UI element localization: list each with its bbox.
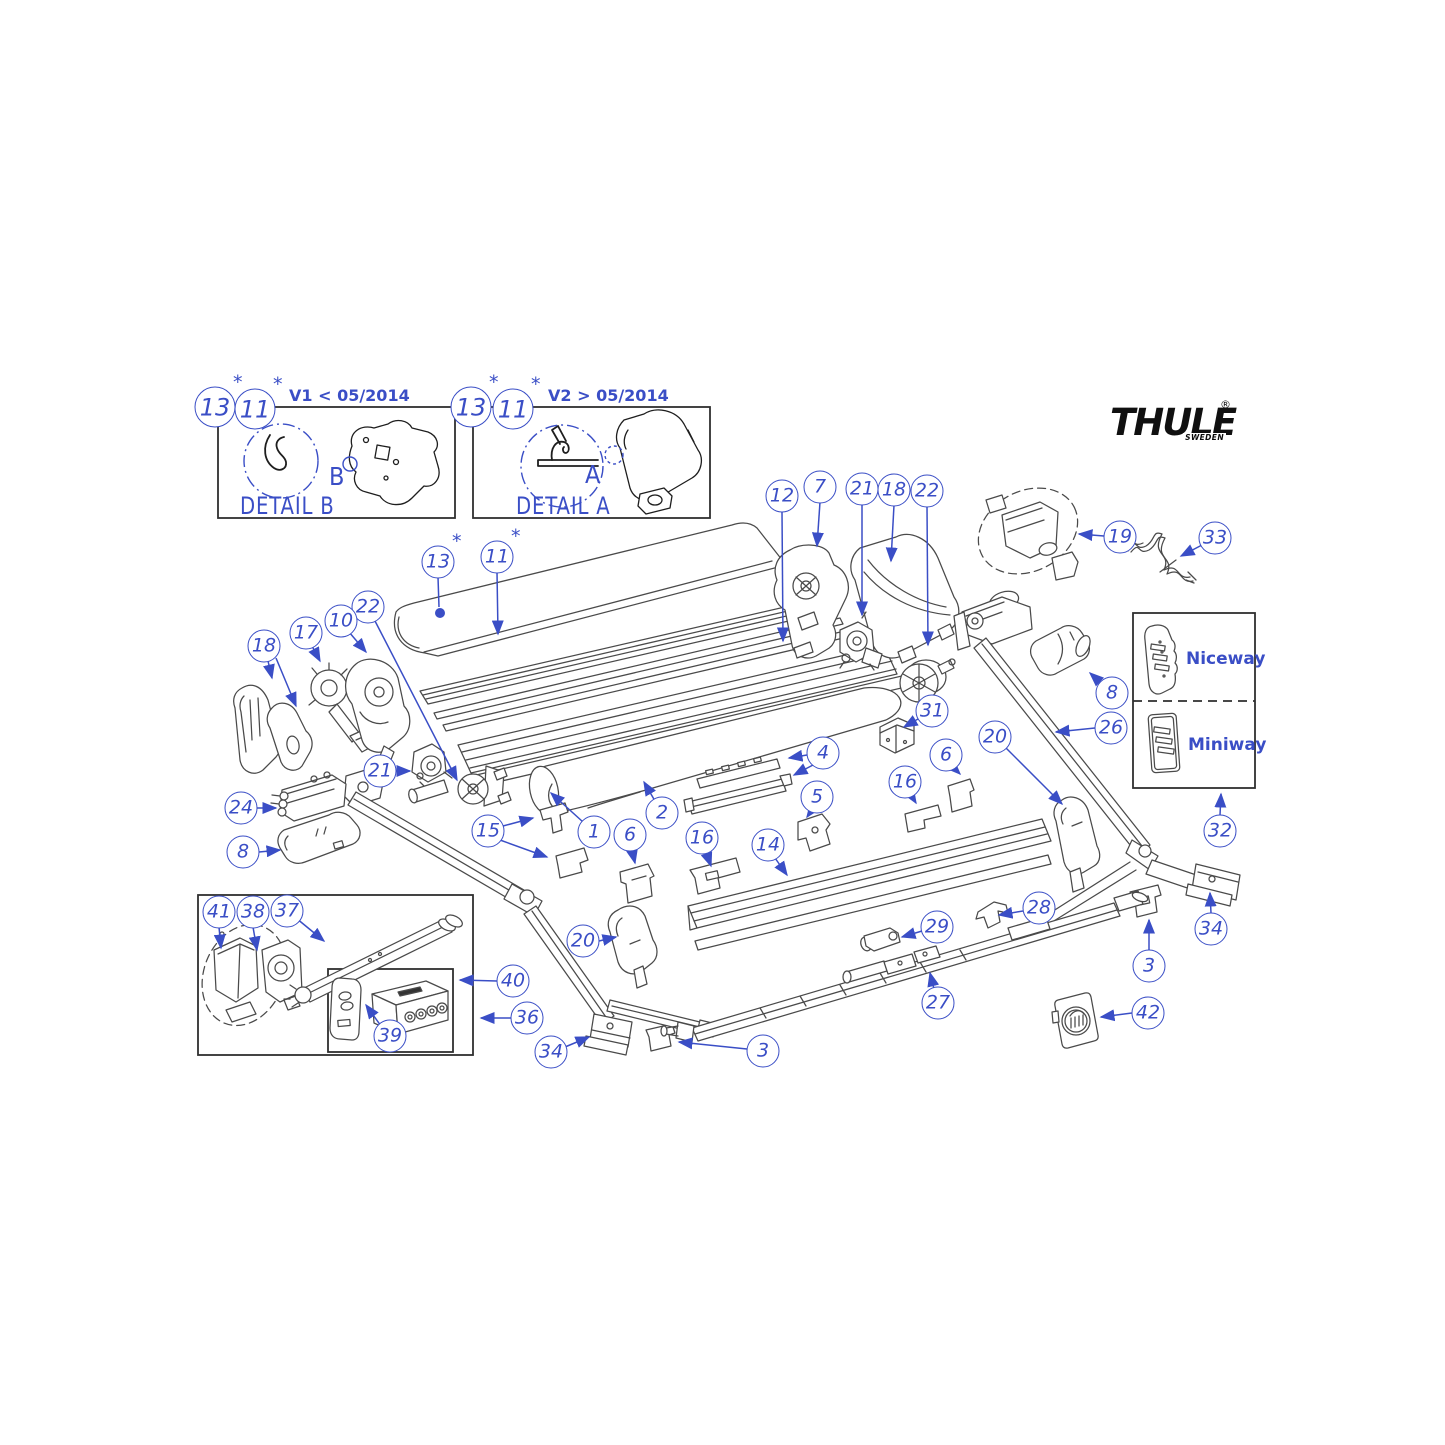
callout-19: 19 (1104, 521, 1137, 554)
callout-11: 11* (481, 541, 514, 574)
callout-34: 34 (1195, 913, 1228, 946)
callout-18: 18 (878, 474, 911, 507)
callout-29: 29 (921, 911, 954, 944)
callout-20: 20 (567, 925, 600, 958)
callout-8: 8 (227, 836, 260, 869)
callout-6: 6 (614, 819, 647, 852)
callout-11: 11* (235, 389, 276, 430)
callout-7: 7 (804, 471, 837, 504)
callout-13: 13* (451, 387, 492, 428)
callout-32: 32 (1204, 815, 1237, 848)
callout-24: 24 (225, 792, 258, 825)
callout-38: 38 (237, 896, 270, 929)
callout-3: 3 (1133, 950, 1166, 983)
callout-40: 40 (497, 965, 530, 998)
callout-3: 3 (747, 1035, 780, 1068)
callout-27: 27 (922, 987, 955, 1020)
callout-22: 22 (911, 475, 944, 508)
callout-21: 21 (846, 473, 879, 506)
callout-11: 11* (493, 389, 534, 430)
callout-13: 13* (195, 387, 236, 428)
callout-layer: 13*11*13*11*127211822193313*11*221017183… (0, 0, 1445, 1445)
callout-16: 16 (686, 822, 719, 855)
callout-31: 31 (916, 695, 949, 728)
parts-diagram-page: V1 < 05/2014 V2 > 05/2014 DETAIL B DETAI… (0, 0, 1445, 1445)
callout-17: 17 (290, 617, 323, 650)
callout-42: 42 (1132, 997, 1165, 1030)
callout-1: 1 (578, 816, 611, 849)
callout-28: 28 (1023, 892, 1056, 925)
callout-13: 13* (422, 546, 455, 579)
callout-36: 36 (511, 1002, 544, 1035)
callout-8: 8 (1096, 677, 1129, 710)
callout-18: 18 (248, 630, 281, 663)
callout-15: 15 (472, 815, 505, 848)
callout-34: 34 (535, 1036, 568, 1069)
callout-39: 39 (374, 1020, 407, 1053)
callout-33: 33 (1199, 522, 1232, 555)
callout-20: 20 (979, 721, 1012, 754)
callout-16: 16 (889, 766, 922, 799)
callout-2: 2 (646, 797, 679, 830)
callout-4: 4 (807, 737, 840, 770)
callout-41: 41 (203, 896, 236, 929)
callout-12: 12 (766, 480, 799, 513)
callout-37: 37 (271, 895, 304, 928)
callout-6: 6 (930, 739, 963, 772)
callout-21: 21 (364, 755, 397, 788)
callout-26: 26 (1095, 712, 1128, 745)
callout-10: 10 (325, 605, 358, 638)
callout-14: 14 (752, 829, 785, 862)
callout-5: 5 (801, 781, 834, 814)
